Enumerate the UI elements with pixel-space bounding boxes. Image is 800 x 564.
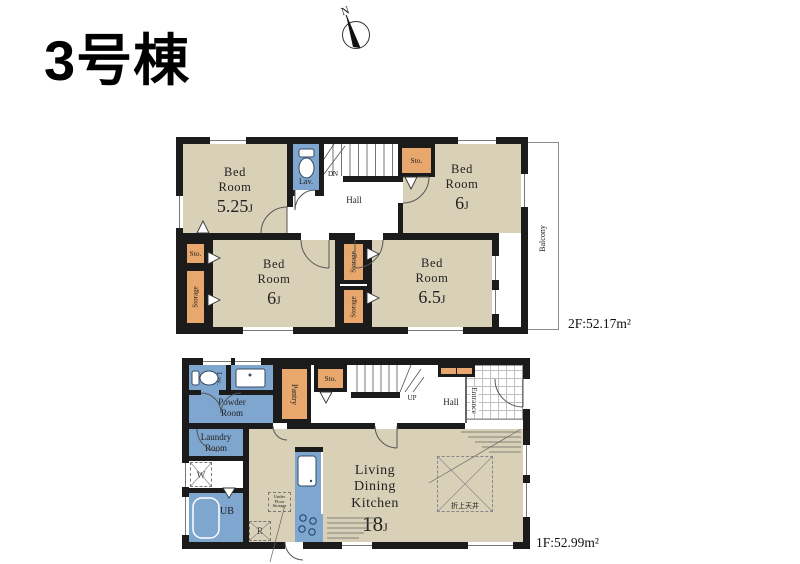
bathtub-icon bbox=[193, 498, 219, 538]
window bbox=[408, 327, 463, 334]
window bbox=[243, 327, 293, 334]
window bbox=[458, 137, 496, 144]
vanity-sink-icon bbox=[236, 369, 265, 387]
kitchen-sink-icon bbox=[298, 456, 316, 486]
window bbox=[523, 445, 530, 475]
floor1-symbols-overlay bbox=[189, 365, 523, 542]
floor2-plan: Sto. Sto. Storage Storage Storage Bed Ro… bbox=[176, 137, 528, 334]
window bbox=[342, 542, 372, 549]
door-arcs-2f bbox=[261, 177, 429, 268]
stove-icon bbox=[299, 515, 316, 535]
floor2-symbols-overlay bbox=[183, 144, 521, 327]
balcony-label: Balcony bbox=[530, 208, 554, 268]
stairs-2f bbox=[324, 144, 393, 176]
entrance-door-opening bbox=[523, 379, 530, 409]
window bbox=[176, 196, 183, 228]
toilet-icon-2f bbox=[299, 149, 314, 178]
compass-icon: N bbox=[334, 2, 380, 60]
stairs-1f bbox=[357, 365, 424, 392]
floor1-plan: Pantry Sto. W R Under Floor Storage 折上天井… bbox=[182, 358, 530, 549]
window bbox=[182, 463, 189, 487]
building-title: 3号棟 bbox=[44, 16, 190, 97]
floor-plan-page: 3号棟 N Balcony 2F:52.17m² Sto. bbox=[0, 0, 800, 564]
floor2-area-label: 2F:52.17m² bbox=[568, 316, 631, 332]
toilet-icon-1f bbox=[192, 371, 218, 385]
compass-north-label: N bbox=[340, 4, 351, 18]
floor1-area-label: 1F:52.99m² bbox=[536, 535, 599, 551]
back-door-opening bbox=[285, 542, 303, 549]
window bbox=[523, 483, 530, 517]
window bbox=[182, 497, 189, 535]
closet-door-marks-2f bbox=[197, 177, 417, 306]
window bbox=[203, 358, 231, 365]
window bbox=[468, 542, 513, 549]
window bbox=[210, 137, 246, 144]
window bbox=[521, 174, 528, 207]
window bbox=[235, 358, 261, 365]
